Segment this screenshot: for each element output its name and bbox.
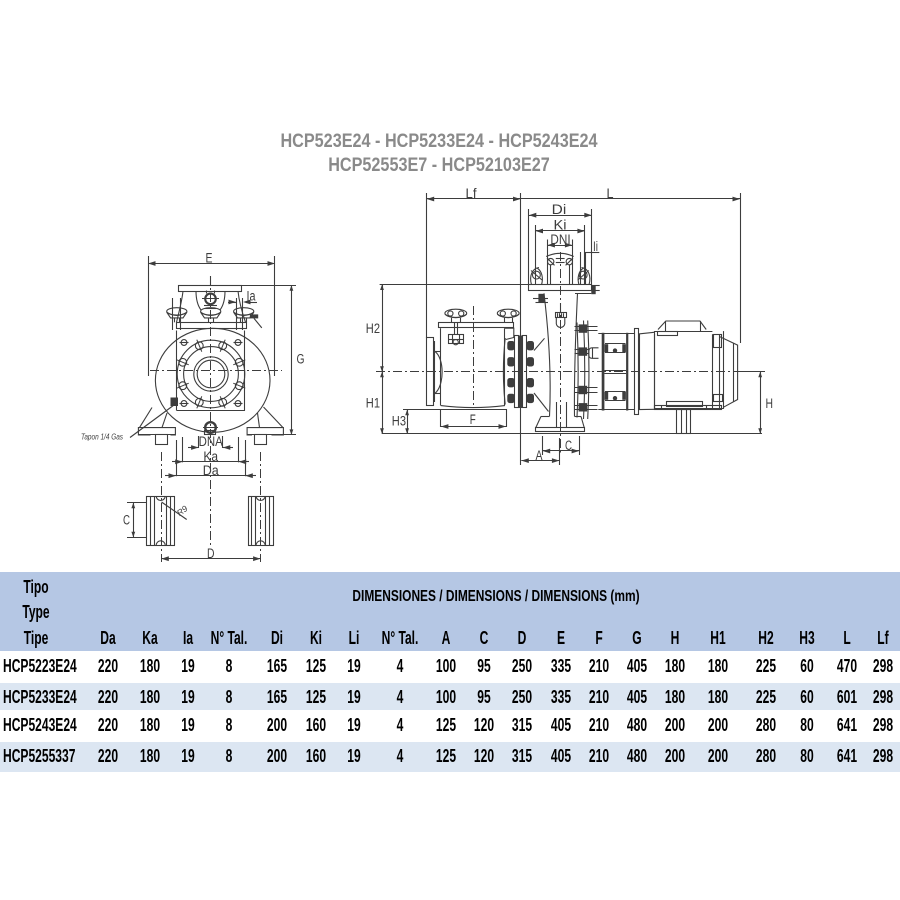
- svg-text:R9: R9: [175, 503, 190, 518]
- svg-text:D: D: [207, 546, 215, 561]
- svg-text:L: L: [607, 186, 614, 201]
- svg-text:DNI: DNI: [550, 232, 570, 247]
- svg-text:C: C: [123, 513, 130, 528]
- svg-text:E: E: [206, 250, 213, 265]
- svg-text:Lf: Lf: [466, 186, 477, 201]
- svg-text:DNA: DNA: [199, 434, 223, 449]
- svg-text:Ii: Ii: [593, 239, 598, 254]
- svg-text:H2: H2: [366, 321, 380, 336]
- svg-text:A: A: [536, 448, 543, 463]
- svg-text:Ki: Ki: [554, 218, 567, 233]
- svg-text:H: H: [766, 396, 774, 411]
- svg-text:Di: Di: [552, 202, 567, 217]
- svg-text:Tapon 1/4 Gas: Tapon 1/4 Gas: [81, 432, 124, 442]
- svg-text:Ia: Ia: [247, 289, 256, 304]
- svg-text:H1: H1: [366, 395, 380, 410]
- svg-text:Da: Da: [203, 463, 219, 478]
- svg-text:H3: H3: [392, 414, 406, 429]
- svg-text:G: G: [297, 352, 305, 367]
- svg-text:Ka: Ka: [203, 449, 218, 464]
- svg-text:F: F: [470, 412, 476, 427]
- svg-text:C: C: [565, 438, 572, 453]
